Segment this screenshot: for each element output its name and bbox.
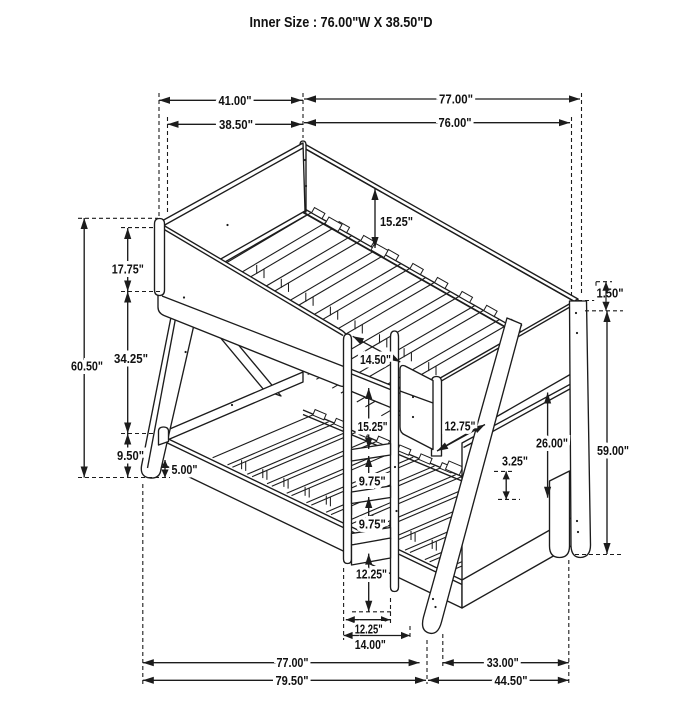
svg-text:34.25": 34.25" <box>114 351 148 366</box>
svg-text:15.25": 15.25" <box>380 214 413 229</box>
svg-text:12.25": 12.25" <box>355 622 383 637</box>
svg-text:12.25": 12.25" <box>356 567 387 582</box>
svg-text:77.00": 77.00" <box>439 92 473 107</box>
svg-text:60.50": 60.50" <box>71 359 103 374</box>
svg-text:9.75": 9.75" <box>359 517 386 532</box>
svg-text:12.75": 12.75" <box>445 419 476 434</box>
svg-text:9.75": 9.75" <box>359 474 386 489</box>
svg-text:Inner Size : 76.00"W X 38.50": Inner Size : 76.00"W X 38.50"D <box>250 14 433 31</box>
svg-text:1.50": 1.50" <box>597 286 624 301</box>
svg-text:44.50": 44.50" <box>495 673 528 688</box>
svg-text:17.75": 17.75" <box>112 262 144 277</box>
svg-text:14.00": 14.00" <box>355 637 386 652</box>
svg-text:14.50": 14.50" <box>360 352 391 367</box>
svg-text:5.00": 5.00" <box>172 462 198 477</box>
svg-text:26.00": 26.00" <box>536 435 568 450</box>
svg-text:33.00": 33.00" <box>487 655 519 670</box>
svg-text:79.50": 79.50" <box>276 673 309 688</box>
svg-text:9.50": 9.50" <box>117 448 144 463</box>
svg-text:38.50": 38.50" <box>219 117 253 132</box>
svg-text:41.00": 41.00" <box>219 93 252 108</box>
svg-text:76.00": 76.00" <box>439 115 472 130</box>
svg-text:15.25": 15.25" <box>358 419 388 434</box>
svg-text:3.25": 3.25" <box>502 454 528 469</box>
svg-text:59.00": 59.00" <box>597 443 629 458</box>
svg-text:77.00": 77.00" <box>277 655 309 670</box>
